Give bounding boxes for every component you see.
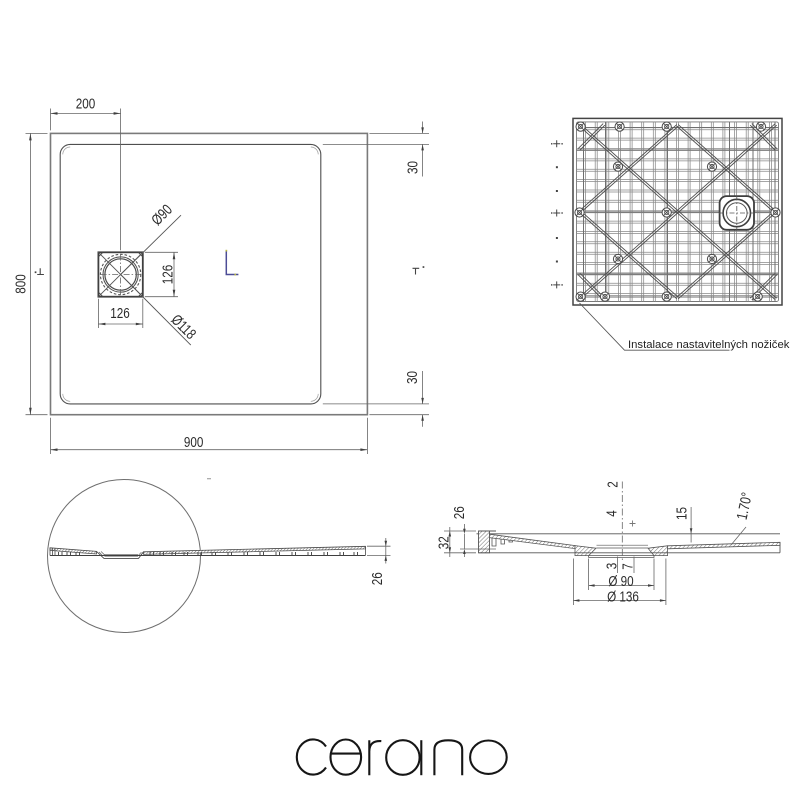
svg-text:126: 126 bbox=[159, 265, 176, 285]
svg-text:26: 26 bbox=[369, 572, 386, 585]
svg-text:200: 200 bbox=[76, 95, 96, 112]
svg-text:2: 2 bbox=[604, 481, 621, 488]
svg-text:30: 30 bbox=[404, 161, 421, 174]
svg-text:126: 126 bbox=[110, 305, 130, 322]
svg-text:800: 800 bbox=[12, 274, 29, 294]
svg-text:15: 15 bbox=[673, 507, 690, 520]
svg-text:Instalace nastavitelných nožič: Instalace nastavitelných nožiček bbox=[628, 339, 790, 351]
svg-text:3: 3 bbox=[603, 563, 620, 570]
svg-text:30: 30 bbox=[404, 371, 421, 384]
svg-text:900: 900 bbox=[184, 434, 204, 451]
svg-text:Ø 136: Ø 136 bbox=[607, 588, 639, 605]
svg-text:32: 32 bbox=[435, 536, 452, 549]
svg-text:26: 26 bbox=[451, 506, 468, 519]
svg-text:4: 4 bbox=[603, 510, 620, 517]
svg-text:Ø 90: Ø 90 bbox=[608, 573, 633, 590]
svg-text:7: 7 bbox=[619, 563, 636, 570]
